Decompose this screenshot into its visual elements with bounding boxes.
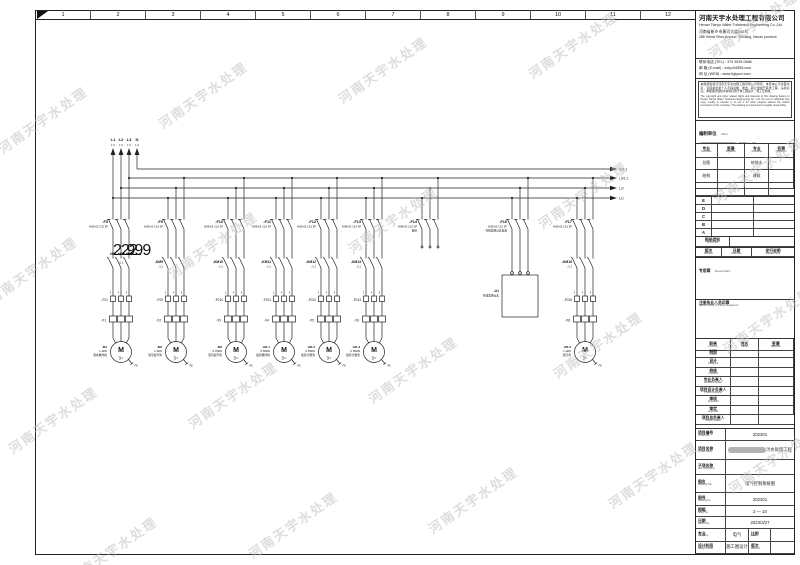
sig-cell [718, 170, 745, 183]
svg-text:2: 2 [574, 293, 576, 295]
svg-text:-F016: -F016 [564, 298, 573, 302]
rev-header-en: Rev Date [732, 253, 742, 256]
disclaimer-section: 本图纸版权归河南天宇水处理工程有限公司所有，未经本公司书面许可，任何单位和个人不… [696, 79, 794, 121]
field-value-2 [771, 542, 794, 554]
sig-header: 专业Discipline [696, 144, 718, 157]
disclaimer-text-en: The copyright and other related rights a… [701, 95, 790, 107]
client-section: 编制单位 Client 有限公司 [696, 121, 794, 145]
personnel-role-en: Project Leader [705, 420, 721, 423]
personnel-role: 审核Reviewed [696, 396, 731, 406]
personnel-name-cell [731, 387, 758, 397]
svg-text:2: 2 [318, 293, 320, 295]
field-label-en: Sheet No. [698, 512, 725, 515]
personnel-role-en: Designed [708, 363, 718, 366]
svg-text:3~: 3~ [282, 356, 287, 361]
field-label: 图号Drawing No. [696, 493, 726, 505]
svg-text:6: 6 [590, 293, 592, 295]
sig-cell [718, 189, 745, 196]
personnel-role: 制图Drawn [696, 349, 731, 359]
svg-text:-X8: -X8 [565, 319, 570, 323]
svg-text:潜污提升泵: 潜污提升泵 [148, 353, 162, 357]
personnel-role: 校核Checked [696, 368, 731, 378]
revision-letter-row: D [696, 205, 794, 213]
field-label-en: Design Phase [698, 548, 725, 551]
rev-header-en: Release Note [766, 253, 781, 256]
field-value: 电气控制系统图 [726, 475, 794, 492]
feeder-group--F9: -F9NXB-63 C16 3P246-KM9/1.1-F09-X2M3~-M2… [144, 177, 193, 368]
field-label: 专业Discipline [696, 529, 726, 541]
sig-cell [696, 183, 718, 190]
field-value-text: 202301 [753, 497, 767, 502]
field-row-split: 设计阶段Design Phase施工图设计版次Revision [696, 542, 794, 555]
svg-text:1.0: 1.0 [135, 143, 139, 147]
field-value-2 [771, 529, 794, 541]
revision-date-cell [712, 221, 754, 229]
rev-header-cell: 版次Revision [696, 248, 722, 257]
redacted-text [728, 447, 766, 453]
revision-date-cell [712, 205, 754, 213]
field-label-en: Project No. [698, 435, 725, 438]
svg-text:N: N [136, 137, 139, 142]
sig-cell [718, 183, 745, 190]
svg-text:/1.1: /1.1 [159, 265, 164, 269]
personnel-sign-cell [759, 387, 794, 397]
feeder-group--F11: -F11NXB-63 C16 3P246-KM11/1.1-F011-X4M3~… [252, 177, 301, 368]
ruler-cell: 8 [421, 10, 476, 19]
revision-date-cell [712, 197, 754, 205]
revision-letter-rows: EDCBA [696, 197, 794, 237]
field-value: 电气 [726, 529, 749, 541]
svg-text:PE: PE [298, 365, 302, 368]
field-value-text: 202301 [753, 432, 767, 437]
rev-header-cell: 日期Rev Date [722, 248, 752, 257]
ruler-origin-marker [37, 11, 48, 19]
personnel-role-en: Project Designer [704, 392, 722, 395]
disclaimer-text-cn: 本图纸版权归河南天宇水处理工程有限公司所有，未经本公司书面许可，任何单位和个人不… [701, 83, 790, 93]
svg-text:4: 4 [281, 293, 283, 295]
personnel-role: 项目总负责人Project Leader [696, 415, 731, 425]
svg-text:NXB-63 C16 3P: NXB-63 C16 3P [297, 225, 316, 229]
contact-line: 网 址 (WEB) : www.hgtyscl.com [699, 72, 791, 78]
client-label-en: Client [721, 133, 728, 136]
field-value [726, 460, 794, 474]
field-value: 施工图设计 [726, 542, 749, 554]
field-row-split: 专业Discipline电气比例Scale [696, 529, 794, 542]
disclaimer-box: 本图纸版权归河南天宇水处理工程有限公司所有，未经本公司书面许可，任何单位和个人不… [698, 81, 792, 118]
ruler-cell: 11 [586, 10, 641, 19]
ruler-cell: 3 [146, 10, 201, 19]
field-label: 项目编号Project No. [696, 429, 726, 440]
svg-text:-F12: -F12 [308, 220, 316, 224]
svg-text:在线监测仪表电源: 在线监测仪表电源 [486, 229, 508, 233]
field-row: 图幅Sheet No.2 — 10 [696, 506, 794, 517]
revision-note-cell [754, 221, 794, 229]
sig-cell: 结构 [696, 170, 718, 183]
svg-text:M: M [173, 347, 179, 354]
field-label: 项目名称Project Name [696, 441, 726, 459]
field-value: 2 — 10 [726, 506, 794, 516]
personnel-header-en: Name [741, 346, 747, 349]
revision-date-cell [712, 213, 754, 221]
print-issue-row: 图纸类别 Print Issue [696, 237, 794, 248]
svg-text:L1: L1 [111, 137, 116, 142]
svg-text:-KM12: -KM12 [306, 260, 316, 264]
svg-text:2: 2 [165, 293, 167, 295]
svg-text:-X3: -X3 [216, 319, 221, 323]
company-block: 河南天宇水处理工程有限公司 Henan Tianyu Water Treatme… [696, 11, 794, 59]
field-value: 2023/3/27 [726, 517, 794, 528]
svg-text:PE: PE [599, 365, 603, 368]
personnel-role-en: Reviewed [708, 401, 719, 404]
svg-text:-F10: -F10 [215, 220, 223, 224]
svg-text:1.0: 1.0 [119, 143, 123, 147]
svg-text:-F17: -F17 [564, 220, 572, 224]
svg-text:6: 6 [334, 293, 336, 295]
svg-text:-F012: -F012 [308, 298, 317, 302]
sig-cell [769, 170, 794, 183]
title-block: 河南天宇水处理工程有限公司 Henan Tianyu Water Treatme… [695, 10, 795, 555]
svg-text:加药计量泵: 加药计量泵 [301, 353, 315, 357]
personnel-header-en: Function [709, 346, 718, 349]
personnel-role-en: Checked [708, 373, 717, 376]
svg-text:M: M [582, 347, 588, 354]
svg-text:2.9: 2.9 [129, 242, 151, 259]
rev-header-cell: 发行说明Release Note [752, 248, 794, 257]
registered-stamp-label-en: Special Stamp Of Person Registered [699, 305, 791, 308]
svg-text:-X5: -X5 [309, 319, 314, 323]
personnel-table: 职责Function姓名Name签署Signature制图Drawn设计Desi… [696, 339, 794, 429]
svg-text:4: 4 [326, 293, 328, 295]
svg-text:在线监测仪表: 在线监测仪表 [483, 294, 499, 298]
svg-text:/1.1: /1.1 [357, 265, 362, 269]
svg-text:PE: PE [388, 365, 392, 368]
sig-cell: 给排水 [745, 158, 770, 171]
svg-text:加药搅拌机: 加药搅拌机 [256, 353, 270, 357]
ruler-cell: 6 [311, 10, 366, 19]
sig-header-en: Signature [776, 151, 786, 154]
svg-text:6: 6 [181, 293, 183, 295]
svg-text:NXB-63 C16 3P: NXB-63 C16 3P [204, 225, 223, 229]
svg-text:3~: 3~ [119, 356, 124, 361]
sig-header: 签署Signature [718, 144, 745, 157]
svg-text:加药计量泵: 加药计量泵 [346, 353, 360, 357]
ruler-cell: 7 [366, 10, 421, 19]
field-label-en: Drawing Title [698, 484, 725, 487]
field-row: 图号Drawing No.202301 [696, 493, 794, 506]
field-label-en: Sub-Item Name [698, 468, 725, 471]
field-label: 日期Issue Date [696, 517, 726, 528]
feeder-group--F13: -F13NXB-63 C16 3P246-KM13/1.1-F013-X6M3~… [342, 177, 391, 368]
svg-text:潜污泵: 潜污泵 [563, 353, 572, 357]
svg-text:6: 6 [379, 293, 381, 295]
svg-text:L2: L2 [119, 137, 124, 142]
svg-text:-F5: -F5 [102, 220, 108, 224]
feeder-group--F14: -F14NXB-63 C10 3P备用 [398, 177, 439, 248]
svg-text:3~: 3~ [372, 356, 377, 361]
svg-text:6: 6 [289, 293, 291, 295]
company-contacts: 联系电话 (TEL) : 373 3535 0686邮 箱 (E-mail) :… [696, 59, 794, 79]
field-row: 子项名称Sub-Item Name [696, 460, 794, 475]
svg-text:-KM10: -KM10 [213, 260, 223, 264]
sig-header-en: Discipline [752, 151, 762, 154]
svg-text:-F14: -F14 [409, 220, 418, 224]
svg-text:3~: 3~ [234, 356, 239, 361]
sig-cell [769, 189, 794, 196]
ruler-cell: 5 [256, 10, 311, 19]
personnel-sign-cell [759, 358, 794, 368]
sig-cell [745, 183, 770, 190]
field-value: 202301 [726, 429, 794, 440]
svg-text:-X1: -X1 [101, 319, 106, 323]
personnel-sign-cell [759, 349, 794, 359]
svg-text:-X4: -X4 [264, 319, 269, 323]
personnel-role-en: Discipline Leader [704, 382, 722, 385]
svg-text:/1.1: /1.1 [267, 265, 272, 269]
field-label-en: Drawing No. [698, 500, 725, 503]
personnel-name-cell [731, 358, 758, 368]
personnel-role-en: Drawn [710, 354, 717, 357]
svg-text:4: 4 [173, 293, 175, 295]
svg-text:NXB-63 C16 3P: NXB-63 C16 3P [553, 225, 572, 229]
special-stamp-label-en: Special Stamp [715, 270, 730, 273]
svg-text:M: M [371, 347, 377, 354]
svg-text:/1.1: /1.1 [312, 265, 317, 269]
svg-text:-F13: -F13 [353, 220, 361, 224]
revision-letter: C [696, 213, 712, 221]
svg-text:2: 2 [225, 293, 227, 295]
feeder-group--F17: -F17NXB-63 C16 3P246-KM16/1.1-F016-X8M3~… [553, 177, 602, 368]
svg-text:-X6: -X6 [354, 319, 359, 323]
svg-text:N/1.1: N/1.1 [619, 167, 627, 171]
field-value-text: 电气控制系统图 [745, 481, 775, 487]
svg-text:-KM16: -KM16 [562, 260, 572, 264]
registered-stamp-area: 注册执业人员印章 Special Stamp Of Person Registe… [696, 300, 794, 340]
feeder-group--F5: -F5NXB-63 C32 3P246KM1KM2KM3KM1KM2KM3/1.… [89, 177, 138, 368]
svg-text:6: 6 [126, 293, 128, 295]
sig-cell [696, 189, 718, 196]
field-label-en: Scale [751, 535, 770, 538]
print-issue-label: 图纸类别 Print Issue [696, 237, 730, 247]
feeder-group--F10: -F10NXB-63 C16 3P246-KM10/1.1-F010-X3M3~… [204, 177, 253, 368]
field-label-en: Project Name [698, 451, 725, 454]
personnel-sign-cell [759, 368, 794, 378]
company-name-en: Henan Tianyu Water Treatment Engineering… [699, 23, 791, 27]
sig-cell [745, 189, 770, 196]
svg-text:NXB-63 C16 3P: NXB-63 C16 3P [252, 225, 271, 229]
svg-text:-KM13: -KM13 [351, 260, 361, 264]
sig-cell: 总图 [696, 158, 718, 171]
feeder-group--F12: -F12NXB-63 C16 3P246-KM12/1.1-F012-X5M3~… [297, 177, 346, 368]
bus-lines: N/1.1L3/1.1L2/L1/ [113, 167, 629, 201]
svg-text:1.0: 1.0 [127, 143, 131, 147]
personnel-name-cell [731, 368, 758, 378]
field-label-en: Revision [751, 548, 770, 551]
sig-header: 专业Discipline [745, 144, 770, 157]
svg-text:L2/: L2/ [619, 186, 624, 190]
field-label: 图名Drawing Title [696, 475, 726, 492]
ruler-cell: 4 [201, 10, 256, 19]
special-stamp-label-cn: 专用章 [699, 269, 710, 273]
field-value-text: 2023/3/27 [750, 520, 769, 525]
svg-text:L3/1.1: L3/1.1 [619, 176, 629, 180]
svg-text:-KM9: -KM9 [155, 260, 163, 264]
svg-text:4: 4 [233, 293, 235, 295]
sig-cell [718, 158, 745, 171]
field-row: 日期Issue Date2023/3/27 [696, 517, 794, 529]
print-issue-en: Print Issue [707, 242, 718, 245]
field-label: 子项名称Sub-Item Name [696, 460, 726, 474]
field-value-text: 施工图设计 [726, 544, 747, 550]
svg-text:M: M [326, 347, 332, 354]
company-name-cn: 河南天宇水处理工程有限公司 [699, 13, 791, 22]
svg-text:-F09: -F09 [156, 298, 163, 302]
revision-table-header: 版次Revision日期Rev Date发行说明Release Note [696, 248, 794, 258]
revision-letter-row: A [696, 229, 794, 237]
svg-text:NXB-63 C16 3P: NXB-63 C16 3P [342, 225, 361, 229]
svg-text:2: 2 [110, 293, 112, 295]
svg-text:M: M [281, 347, 287, 354]
svg-text:-U1: -U1 [494, 289, 500, 293]
svg-text:2: 2 [273, 293, 275, 295]
svg-text:-X2: -X2 [156, 319, 161, 323]
field-label-2: 比例Scale [749, 529, 771, 541]
svg-text:潜污提升泵: 潜污提升泵 [208, 353, 222, 357]
svg-text:NXB-63 C10 3P: NXB-63 C10 3P [488, 225, 507, 229]
svg-text:PE: PE [190, 365, 194, 368]
svg-text:M: M [118, 347, 124, 354]
field-value: 污水处理工程 [726, 441, 794, 459]
print-issue-value [730, 237, 794, 247]
svg-text:3~: 3~ [583, 356, 588, 361]
svg-text:-F013: -F013 [353, 298, 362, 302]
personnel-header-en: Signature [771, 346, 781, 349]
personnel-name-cell [731, 406, 758, 416]
sig-header-en: Discipline [701, 151, 711, 154]
field-label: 图幅Sheet No. [696, 506, 726, 516]
field-row: 图名Drawing Title电气控制系统图 [696, 475, 794, 493]
svg-text:-F11: -F11 [263, 220, 271, 224]
svg-text:/1.1: /1.1 [568, 265, 573, 269]
discipline-signature-table: 专业Discipline签署Signature专业Discipline签署Sig… [696, 144, 794, 197]
personnel-role: 审定Approved [696, 406, 731, 416]
svg-text:4: 4 [582, 293, 584, 295]
revision-letter: D [696, 205, 712, 213]
field-label-en: Issue Date [698, 523, 725, 526]
personnel-name-cell [731, 349, 758, 359]
schematic-canvas: L11.0L21.0L31.0N1.0N/1.1L3/1.1L2/L1/-F5N… [35, 20, 695, 555]
svg-text:-KM11: -KM11 [261, 260, 271, 264]
revision-letter: E [696, 197, 712, 205]
rev-header-en: Revision [704, 253, 713, 256]
svg-text:6: 6 [241, 293, 243, 295]
svg-text:/1.1: /1.1 [219, 265, 224, 269]
field-label-en: Discipline [698, 535, 725, 538]
client-label-cn: 编制单位 [699, 131, 717, 136]
personnel-role: 专业负责人Discipline Leader [696, 377, 731, 387]
revision-letter: A [696, 229, 712, 237]
top-ruler: 123456789101112 [36, 10, 695, 20]
revision-letter-row: E [696, 197, 794, 205]
svg-text:PE: PE [135, 365, 139, 368]
drawing-sheet: 河南天宇水处理河南天宇水处理河南天宇水处理河南天宇水处理河南天宇水处理河南天宇水… [0, 0, 800, 565]
ruler-cell: 9 [476, 10, 531, 19]
field-row: 项目名称Project Name污水处理工程 [696, 441, 794, 460]
revision-date-cell [712, 229, 754, 237]
svg-text:3~: 3~ [327, 356, 332, 361]
revision-letter: B [696, 221, 712, 229]
revision-letter-row: B [696, 221, 794, 229]
sig-cell: 建筑 [745, 170, 770, 183]
svg-text:-F010: -F010 [215, 298, 224, 302]
svg-text:备用: 备用 [412, 229, 418, 233]
ruler-cell: 10 [531, 10, 586, 19]
svg-text:4: 4 [371, 293, 373, 295]
personnel-role: 项目设计负责人Project Designer [696, 387, 731, 397]
revision-note-cell [754, 205, 794, 213]
revision-note-cell [754, 229, 794, 237]
personnel-name-cell [731, 396, 758, 406]
svg-text:PE: PE [250, 365, 254, 368]
field-label-2: 版次Revision [749, 542, 771, 554]
svg-text:2: 2 [363, 293, 365, 295]
field-label: 设计阶段Design Phase [696, 542, 726, 554]
sig-header: 签署Signature [769, 144, 794, 157]
personnel-sign-cell [759, 406, 794, 416]
personnel-sign-cell [759, 377, 794, 387]
personnel-name-cell [731, 415, 758, 425]
field-value: 202301 [726, 493, 794, 505]
svg-text:NXB-63 C10 3P: NXB-63 C10 3P [398, 225, 417, 229]
special-stamp-area: 专用章 Special Stamp [696, 258, 794, 300]
svg-text:4: 4 [118, 293, 120, 295]
personnel-role: 设计Designed [696, 358, 731, 368]
revision-note-cell [754, 213, 794, 221]
revision-note-cell [754, 197, 794, 205]
svg-text:-F9: -F9 [157, 220, 163, 224]
svg-text:M: M [233, 347, 239, 354]
ruler-cell: 12 [641, 10, 695, 19]
ruler-cell: 2 [91, 10, 146, 19]
drawing-info-fields: 项目编号Project No.202301项目名称Project Name污水处… [696, 429, 794, 554]
sig-cell [769, 158, 794, 171]
svg-text:L1/: L1/ [619, 196, 624, 200]
revision-letter-row: C [696, 213, 794, 221]
field-row: 项目编号Project No.202301 [696, 429, 794, 441]
svg-text:PE: PE [343, 365, 347, 368]
svg-text:NXB-63 C32 3P: NXB-63 C32 3P [89, 225, 108, 229]
svg-text:/1.1: /1.1 [119, 261, 124, 265]
personnel-sign-cell [759, 396, 794, 406]
svg-text:-F16: -F16 [499, 220, 507, 224]
field-value-text: 2 — 10 [753, 509, 767, 514]
personnel-role-en: Approved [708, 411, 718, 414]
svg-text:-F011: -F011 [263, 298, 271, 302]
company-address-en: 288 Yellow River Avenue, Xinxiang, Henan… [699, 35, 791, 39]
incoming-supply: L11.0L21.0L31.0N1.0 [111, 137, 140, 198]
svg-text:潜水搅拌机: 潜水搅拌机 [93, 353, 107, 357]
personnel-sign-cell [759, 415, 794, 425]
field-value-text: 电气 [733, 532, 742, 538]
svg-text:-F01: -F01 [101, 298, 108, 302]
svg-text:L3: L3 [127, 137, 132, 142]
svg-text:1.0: 1.0 [111, 143, 115, 147]
sig-cell [769, 183, 794, 190]
personnel-name-cell [731, 377, 758, 387]
svg-text:3~: 3~ [174, 356, 179, 361]
svg-text:NXB-63 C16 3P: NXB-63 C16 3P [144, 225, 163, 229]
sig-header-en: Signature [726, 151, 736, 154]
field-value-text: 污水处理工程 [766, 447, 792, 453]
